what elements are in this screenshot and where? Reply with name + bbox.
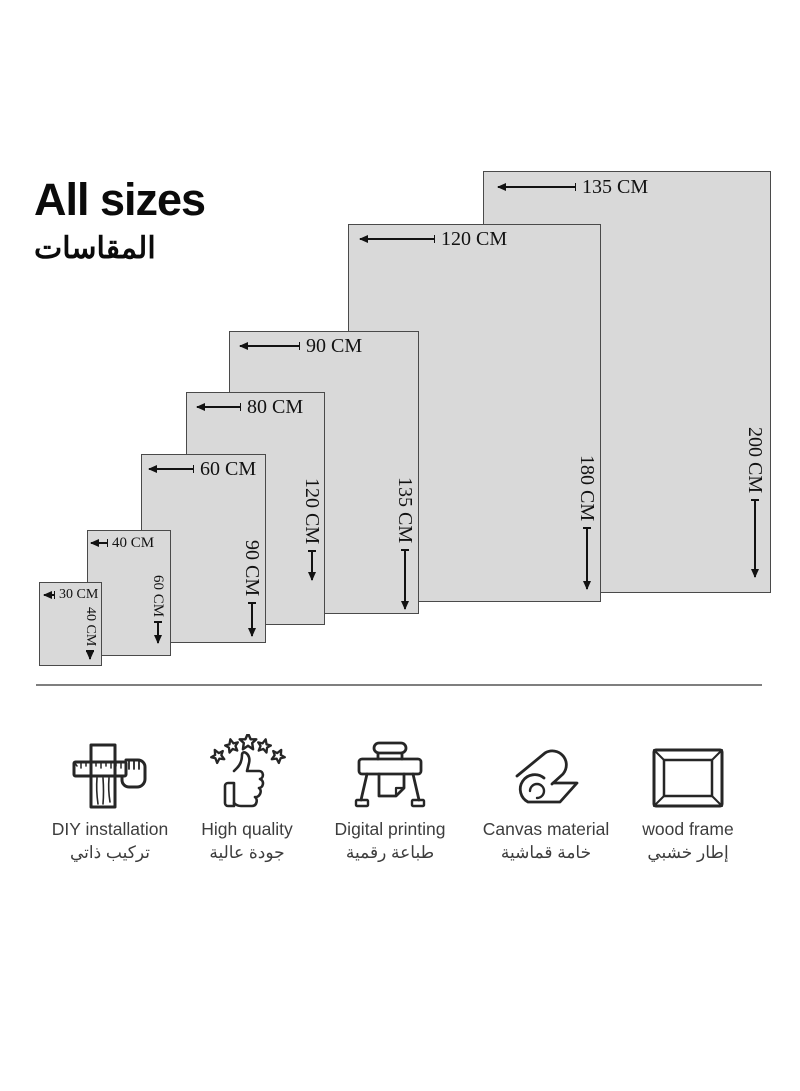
height-label: 120 CM [301,478,324,544]
width-dimension-60cm: 60 CM [149,457,256,481]
width-dimension-90cm: 90 CM [240,334,362,358]
height-dimension-200cm: 200 CM [743,427,767,577]
feature-label-en: Canvas material [483,818,609,842]
width-dimension-80cm: 80 CM [197,395,303,419]
picture-frame-icon [648,736,728,810]
measuring-tape-plank-icon [69,736,151,810]
width-dimension-40cm: 40 CM [91,534,154,552]
height-dimension-40cm: 40 CM [81,607,99,659]
height-label: 180 CM [576,455,599,521]
width-label: 135 CM [582,176,648,199]
thumbs-up-stars-icon [204,736,290,810]
width-label: 120 CM [441,228,507,251]
down-arrow-icon [311,550,313,580]
height-label: 200 CM [744,427,767,493]
height-dimension-180cm: 180 CM [575,455,599,589]
feature-label-en: DIY installation [52,818,168,842]
feature-digital-printing: Digital printing طباعة رقمية [305,736,475,864]
down-arrow-icon [754,499,756,577]
width-dimension-30cm: 30 CM [44,586,98,604]
down-arrow-icon [586,527,588,589]
feature-label-ar: إطار خشبي [647,842,728,864]
left-arrow-icon [197,406,241,408]
feature-label-ar: جودة عالية [209,842,284,864]
width-label: 90 CM [306,335,362,358]
width-label: 80 CM [247,396,303,419]
height-label: 90 CM [241,540,264,596]
down-arrow-icon [251,602,253,636]
title-arabic: المقاسات [34,231,205,266]
height-dimension-90cm: 90 CM [240,540,264,636]
width-dimension-135cm: 135 CM [498,175,648,199]
feature-label-en: Digital printing [335,818,446,842]
plotter-printer-icon [351,736,429,810]
width-dimension-120cm: 120 CM [360,227,507,251]
feature-label-ar: تركيب ذاتي [70,842,150,864]
left-arrow-icon [240,345,300,347]
title-english: All sizes [34,176,205,223]
height-label: 135 CM [394,477,417,543]
height-dimension-120cm: 120 CM [300,478,324,580]
section-divider [36,684,762,686]
width-label: 40 CM [112,535,154,552]
left-arrow-icon [498,186,576,188]
feature-label-ar: خامة قماشية [501,842,591,864]
height-label: 60 CM [150,575,167,617]
canvas-roll-icon [504,736,588,810]
feature-wood-frame: wood frame إطار خشبي [603,736,773,864]
left-arrow-icon [149,468,194,470]
height-dimension-135cm: 135 CM [393,477,417,609]
width-label: 60 CM [200,458,256,481]
down-arrow-icon [157,621,159,643]
left-arrow-icon [360,238,435,240]
feature-label-ar: طباعة رقمية [346,842,434,864]
height-dimension-60cm: 60 CM [149,575,167,643]
down-arrow-icon [404,549,406,609]
width-label: 30 CM [59,587,98,603]
down-arrow-icon [89,650,91,659]
page-title: All sizes المقاسات [34,176,205,266]
feature-label-en: wood frame [642,818,733,842]
height-label: 40 CM [82,607,98,646]
left-arrow-icon [44,594,55,596]
feature-label-en: High quality [201,818,292,842]
left-arrow-icon [91,542,108,544]
